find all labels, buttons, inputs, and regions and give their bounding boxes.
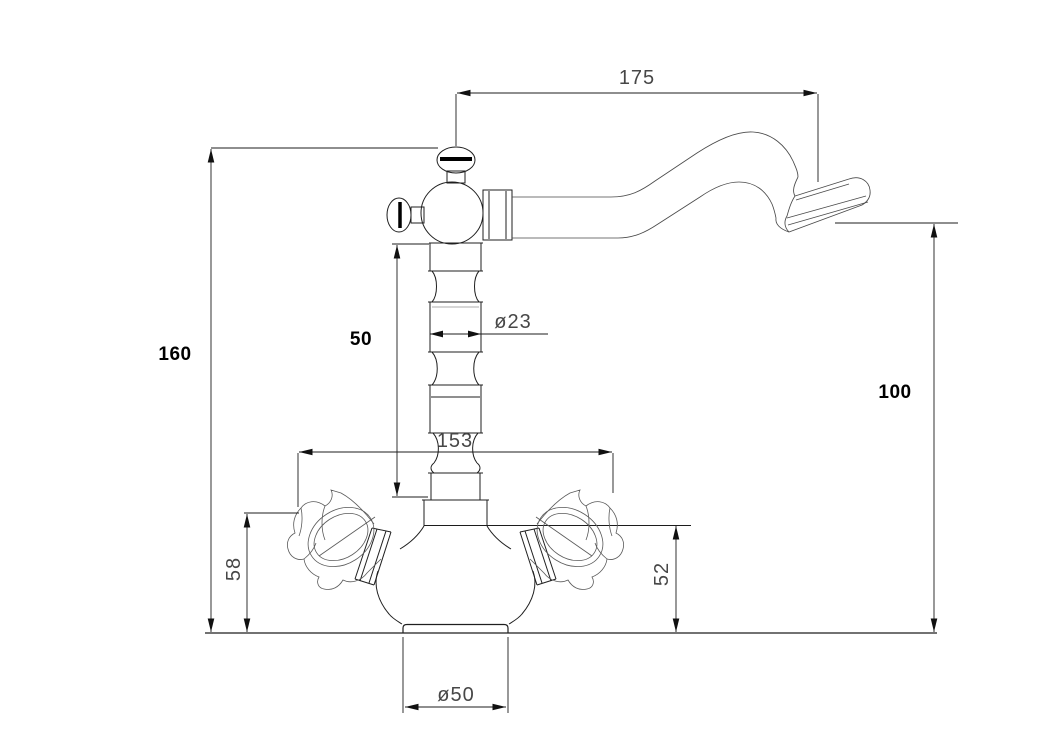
dim-base-diameter-label: ø50 [437,684,474,706]
dim-column-height-label: 50 [350,329,372,350]
side-screw-knob [387,198,424,232]
dim-spout-reach-label: 175 [619,67,655,89]
spout-collar [483,190,512,240]
spout [512,132,798,238]
dimension-column-diameter: ø23 [430,311,548,337]
dimension-base-diameter: ø50 [403,637,508,713]
dim-body-height-label: 52 [651,562,673,586]
dim-handle-height-label: 58 [223,557,245,581]
dimension-handle-height: 58 [223,513,299,632]
aerator-head [785,178,870,232]
technical-drawing-canvas: 175 160 100 50 ø23 153 58 [0,0,1045,731]
valve-body [421,182,483,244]
dim-column-diameter-label: ø23 [494,311,531,333]
faucet-dimension-drawing: 175 160 100 50 ø23 153 58 [0,0,1045,731]
dimension-column-height: 50 [350,244,429,497]
dim-spout-height-label: 100 [878,382,911,403]
mounting-flange [403,625,508,634]
dim-handle-span-label: 153 [437,430,473,452]
dimension-body-height: 52 [651,526,676,632]
top-screw-knob [437,147,475,183]
base-block [422,500,691,526]
left-handle-assembly [287,490,424,624]
dimension-spout-height: 100 [835,223,958,632]
column-riser [428,243,483,500]
dimension-spout-reach: 175 [456,67,818,182]
right-handle-assembly [487,490,624,624]
dim-overall-height-label: 160 [158,344,191,365]
faucet-figure [205,132,937,633]
